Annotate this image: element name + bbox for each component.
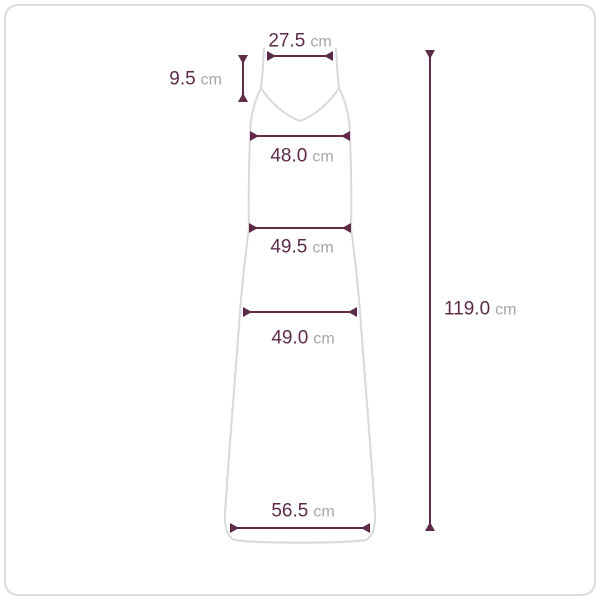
label-strap-drop: 9.5 cm (169, 70, 222, 89)
label-waist-width: 49.5 cm (270, 238, 333, 257)
label-bust-width: 48.0 cm (270, 147, 333, 166)
left-strap (261, 49, 264, 88)
label-hip-width: 49.0 cm (271, 329, 334, 348)
waist-width-unit: cm (312, 241, 333, 257)
measure-line-top-width (267, 51, 333, 61)
hem-width-unit: cm (313, 505, 334, 521)
measure-line-hip-width (243, 307, 357, 317)
bust-width-value: 48.0 (270, 147, 307, 166)
waist-width-value: 49.5 (270, 238, 307, 257)
right-strap (336, 49, 339, 88)
label-total-length: 119.0 cm (444, 300, 516, 319)
label-top-width: 27.5 cm (268, 32, 331, 51)
measure-line-hem-width (230, 523, 370, 533)
hem-width-value: 56.5 (271, 502, 308, 521)
hip-width-unit: cm (313, 332, 334, 348)
top-width-unit: cm (310, 35, 331, 51)
measure-line-strap-drop (238, 55, 248, 102)
label-hem-width: 56.5 cm (271, 502, 334, 521)
strap-drop-value: 9.5 (169, 70, 195, 89)
strap-drop-unit: cm (201, 73, 222, 89)
measure-line-waist-width (249, 223, 351, 233)
measure-line-total-length (425, 50, 435, 531)
total-length-value: 119.0 (444, 300, 490, 319)
bust-width-unit: cm (312, 150, 333, 166)
measure-line-bust-width (250, 131, 350, 141)
dress-outline (225, 49, 375, 543)
hip-width-value: 49.0 (271, 329, 308, 348)
top-width-value: 27.5 (268, 32, 305, 51)
v-neckline (261, 88, 339, 121)
total-length-unit: cm (495, 303, 516, 319)
